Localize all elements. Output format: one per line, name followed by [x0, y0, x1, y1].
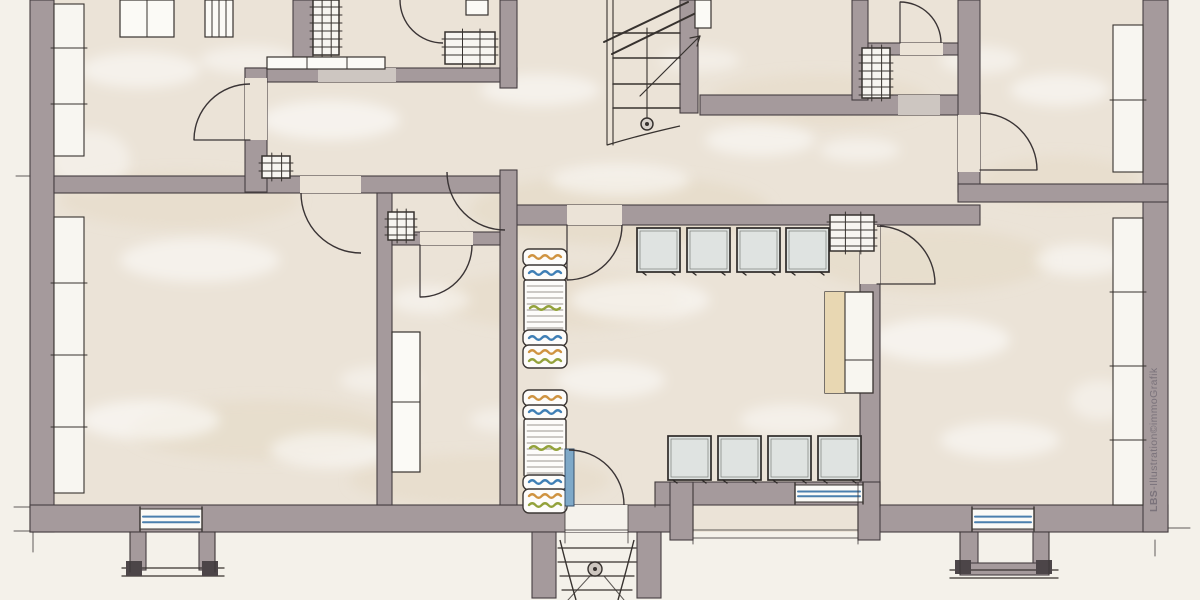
floor-patch — [555, 362, 665, 398]
exterior-wall — [30, 0, 54, 532]
interior-wall — [500, 170, 517, 505]
interior-wall — [670, 482, 693, 540]
interior-wall — [293, 0, 313, 57]
bay-window-cap — [955, 560, 971, 574]
watermark-rest: -Illustration©immoGrafik — [1148, 367, 1160, 490]
wall-opening — [958, 115, 980, 172]
chimney — [388, 212, 414, 240]
kitchen-cabinet — [737, 228, 780, 272]
wall-opening — [318, 68, 396, 82]
wall-opening — [567, 205, 622, 225]
chimney — [445, 32, 495, 64]
floor-patch — [820, 138, 900, 162]
cabinet-panel — [825, 292, 845, 393]
wall-opening — [245, 78, 267, 140]
watermark-bold: LBS — [1148, 490, 1160, 512]
floor-patch — [550, 164, 690, 196]
floor-patch — [80, 52, 200, 88]
bed — [523, 489, 567, 513]
floor-patch — [870, 318, 1010, 362]
chimney — [262, 156, 290, 178]
entrance-door-leaf — [565, 449, 574, 506]
floor-patch — [740, 404, 840, 436]
window — [140, 509, 202, 529]
watermark-text: LBS-Illustration©immoGrafik — [1148, 367, 1160, 512]
floor-patch — [390, 286, 470, 314]
interior-wall — [960, 563, 1049, 575]
kitchen-cabinet — [818, 436, 861, 480]
kitchen-cabinet — [786, 228, 829, 272]
staircase-newel-center — [645, 122, 649, 126]
floor-patch — [705, 124, 815, 156]
window — [972, 509, 1034, 529]
bed — [524, 280, 566, 332]
floor-patch — [940, 422, 1060, 458]
window — [1113, 218, 1143, 505]
floor-plan-svg: LBS-Illustration©immoGrafik — [0, 0, 1200, 600]
closet — [267, 57, 385, 69]
interior-wall — [532, 532, 556, 598]
bay-window-cap — [126, 561, 142, 576]
floor-patch — [260, 100, 400, 140]
floor-patch — [660, 48, 740, 72]
kitchen-cabinet — [637, 228, 680, 272]
bay-window-cap — [202, 561, 218, 576]
closet — [466, 0, 488, 15]
window — [54, 4, 84, 156]
bed — [523, 345, 567, 368]
floor-patch — [80, 400, 220, 440]
bay-window-cap — [1036, 560, 1052, 574]
kitchen-cabinet — [718, 436, 761, 480]
floor-patch — [570, 280, 710, 320]
window — [1113, 25, 1143, 172]
interior-wall — [500, 0, 517, 88]
wall-opening — [300, 176, 361, 193]
closet — [695, 0, 711, 28]
entrance-steps-post-center — [593, 567, 597, 571]
wall-opening — [420, 232, 473, 245]
floor-patch — [120, 238, 280, 282]
kitchen-cabinet — [768, 436, 811, 480]
floor-plan: LBS-Illustration©immoGrafik — [0, 0, 1200, 600]
interior-wall — [958, 184, 1168, 202]
window — [795, 485, 863, 502]
wall-opening — [900, 43, 943, 55]
kitchen-cabinet — [687, 228, 730, 272]
interior-wall — [637, 532, 661, 598]
floor-patch — [1035, 244, 1125, 276]
floor-patch — [1010, 74, 1110, 106]
kitchen-cabinet — [668, 436, 711, 480]
wall-opening — [898, 95, 940, 115]
floor-patch — [270, 432, 390, 468]
wall-opening — [565, 505, 628, 532]
